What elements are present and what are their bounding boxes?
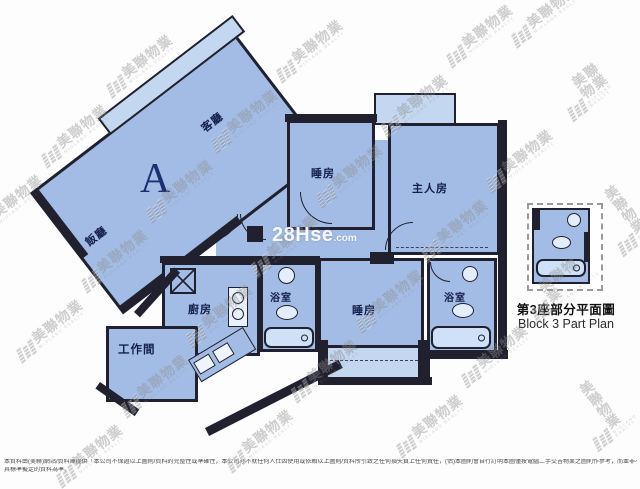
midland-logo-icon: [39, 144, 63, 168]
inset-bathtub: [536, 259, 586, 277]
midland-logo-icon: [459, 364, 483, 388]
master-bay-window: [374, 93, 456, 125]
inset-wall: [584, 232, 590, 262]
bathroom-1-label: 浴室: [270, 289, 292, 304]
midland-watermark-text: 美聯物業MIDLAND REALTY: [499, 127, 558, 179]
midland-watermark-text: 美聯物業MIDLAND REALTY: [29, 297, 88, 349]
inset-wash-basin: [567, 213, 581, 227]
midland-watermark-text: 美聯物業MIDLAND REALTY: [409, 392, 468, 444]
bathtub: [431, 326, 491, 349]
toilet: [276, 305, 298, 320]
bedroom-1-label: 睡房: [311, 165, 335, 181]
floor-plan: A 客廳 飯廳 睡房 主人房 廚房 浴室 睡房 浴室 工作間 28Hse.com…: [0, 0, 640, 480]
stove: [228, 287, 248, 327]
wall-segment: [285, 114, 377, 122]
wall-segment: [205, 360, 343, 436]
inset-toilet: [552, 236, 571, 249]
midland-logo-icon: [14, 339, 38, 363]
midland-logo-icon: [616, 233, 640, 257]
midland-watermark: 美聯物業MIDLAND REALTY: [552, 58, 618, 121]
bay-dashed-line: [330, 360, 418, 361]
wall-segment: [498, 120, 507, 358]
unit-label: A: [140, 155, 170, 203]
utility-room-label: 工作間: [118, 341, 156, 357]
bedroom-2-label: 睡房: [352, 302, 376, 318]
wall-segment: [318, 377, 432, 385]
midland-watermark: 美聯物業MIDLAND REALTY: [12, 297, 88, 362]
wall-segment: [426, 350, 508, 359]
midland-logo-icon: [104, 74, 128, 98]
midland-logo-icon: [394, 434, 418, 458]
disclaimer-line-1: 本資料由(美聯)網站/資料庫提供「本公司不保證以上圖則/資料的完整性或準確性，本…: [4, 459, 637, 466]
midland-watermark: 美聯物業MIDLAND REALTY: [272, 17, 348, 82]
wall-segment: [160, 256, 320, 263]
wash-basin: [462, 266, 478, 282]
midland-watermark-text: 美聯物業MIDLAND REALTY: [577, 369, 640, 438]
kitchen-label: 廚房: [188, 301, 212, 317]
utility-room: [106, 326, 198, 402]
duct-shaft-icon: [170, 268, 196, 294]
wall-segment: [370, 252, 394, 264]
disclaimer-line-2: 其標準擬定的資料為準。: [4, 467, 637, 474]
wall-segment: [418, 340, 430, 382]
bathtub: [264, 327, 314, 348]
inset-caption-en: Block 3 Part Plan: [514, 317, 618, 331]
midland-logo-icon: [565, 98, 589, 122]
wardrobe-dashed-line: [396, 247, 488, 248]
master-bedroom-label: 主人房: [412, 180, 448, 196]
midland-logo-icon: [591, 428, 615, 452]
wash-basin: [278, 267, 295, 284]
midland-watermark-text: 美聯物業MIDLAND REALTY: [459, 2, 518, 54]
midland-watermark: 美聯物業MIDLAND REALTY: [442, 2, 518, 67]
toilet: [452, 303, 474, 318]
midland-watermark-text: 美聯物業MIDLAND REALTY: [289, 17, 348, 69]
28hse-watermark-text: 28Hse: [272, 224, 333, 246]
midland-watermark: 美聯物業MIDLAND REALTY: [392, 392, 468, 457]
exterior-wall: [30, 188, 88, 260]
midland-watermark-text: 美聯物業MIDLAND REALTY: [602, 174, 640, 243]
midland-logo-icon: [274, 59, 298, 83]
midland-watermark: 美聯物業MIDLAND REALTY: [52, 422, 128, 487]
midland-watermark-text: 美聯物業MIDLAND REALTY: [569, 58, 618, 107]
inset-caption-cn: 第3座部分平面圖: [514, 299, 618, 318]
midland-watermark-text: 美聯物業MIDLAND REALTY: [524, 0, 583, 34]
midland-logo-icon: [444, 44, 468, 68]
28hse-watermark-suffix: .com: [333, 233, 356, 244]
bathroom-2-label: 浴室: [444, 289, 466, 304]
midland-watermark: 美聯物業MIDLAND REALTY: [560, 369, 640, 452]
28hse-watermark: 28Hse.com: [272, 224, 357, 247]
midland-watermark: 美聯物業MIDLAND REALTY: [507, 0, 583, 48]
midland-logo-icon: [509, 24, 533, 48]
inset-wall: [532, 208, 540, 230]
